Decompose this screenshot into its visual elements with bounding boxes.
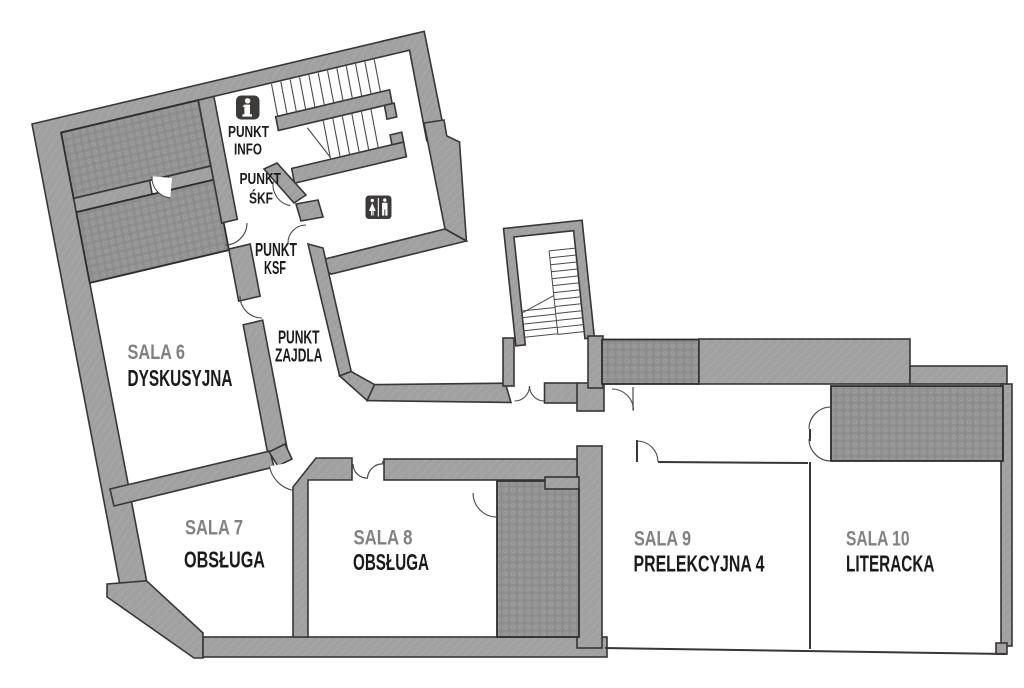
svg-text:KSF: KSF [264,258,286,278]
svg-text:ZAJDLA: ZAJDLA [275,345,323,366]
svg-text:LITERACKA: LITERACKA [846,551,935,577]
svg-text:DYSKUSYJNA: DYSKUSYJNA [128,365,233,391]
svg-text:SALA 8: SALA 8 [354,527,413,550]
svg-text:OBSŁUGA: OBSŁUGA [353,549,429,575]
svg-text:PUNKT: PUNKT [240,171,282,188]
svg-text:INFO: INFO [234,142,262,159]
svg-text:ŚKF: ŚKF [249,189,273,208]
svg-text:SALA 9: SALA 9 [634,528,691,551]
svg-text:SALA 10: SALA 10 [846,528,910,551]
svg-text:SALA 6: SALA 6 [128,341,186,364]
svg-text:OBSŁUGA: OBSŁUGA [184,547,265,573]
svg-text:PUNKT: PUNKT [255,240,297,260]
svg-text:PRELEKCYJNA 4: PRELEKCYJNA 4 [634,551,765,577]
svg-text:SALA 7: SALA 7 [185,517,243,540]
svg-text:PUNKT: PUNKT [228,124,269,141]
